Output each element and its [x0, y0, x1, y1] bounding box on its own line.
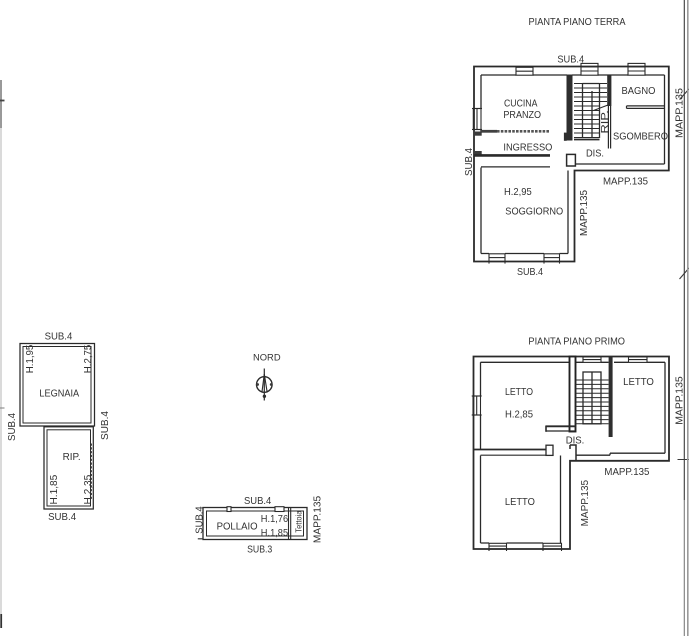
svg-text:SUB.4: SUB.4 — [244, 495, 271, 507]
svg-text:RIP.: RIP. — [599, 110, 611, 133]
svg-text:MAPP.135: MAPP.135 — [674, 376, 686, 425]
svg-text:MAPP.135: MAPP.135 — [579, 480, 591, 527]
svg-text:H.2,35: H.2,35 — [82, 475, 94, 505]
svg-text:H.2,85: H.2,85 — [505, 408, 533, 420]
svg-text:SGOMBERO: SGOMBERO — [613, 131, 668, 143]
svg-text:PIANTA PIANO PRIMO: PIANTA PIANO PRIMO — [528, 336, 625, 348]
svg-text:RIP.: RIP. — [63, 451, 81, 463]
svg-text:MAPP.135: MAPP.135 — [603, 175, 648, 187]
svg-text:DIS.: DIS. — [586, 147, 604, 159]
svg-text:PRANZO: PRANZO — [503, 109, 541, 121]
svg-text:INGRESSO: INGRESSO — [503, 143, 552, 154]
svg-text:H.1,76: H.1,76 — [261, 513, 288, 525]
svg-text:LETTO: LETTO — [623, 376, 654, 388]
svg-text:H.2,75: H.2,75 — [82, 345, 94, 374]
svg-text:H.1,95: H.1,95 — [24, 345, 36, 374]
svg-text:NORD: NORD — [253, 352, 281, 363]
svg-text:SUB.4: SUB.4 — [45, 331, 73, 343]
svg-text:MAPP.135: MAPP.135 — [312, 496, 324, 543]
svg-text:SUB.4: SUB.4 — [48, 511, 76, 523]
svg-text:SOGGIORNO: SOGGIORNO — [505, 205, 563, 217]
svg-text:SUB.4: SUB.4 — [517, 266, 543, 278]
svg-text:H.2,95: H.2,95 — [504, 186, 532, 198]
svg-text:LETTO: LETTO — [505, 386, 533, 398]
svg-text:H.1,85: H.1,85 — [261, 527, 288, 539]
svg-text:SUB.4: SUB.4 — [194, 506, 206, 534]
svg-text:POLLAIO: POLLAIO — [217, 520, 258, 532]
svg-text:SUB.4: SUB.4 — [6, 413, 18, 441]
svg-text:LEGNAIA: LEGNAIA — [39, 388, 79, 400]
svg-text:MAPP.135: MAPP.135 — [604, 466, 649, 478]
svg-text:LETTO: LETTO — [505, 496, 535, 508]
svg-text:MAPP.135: MAPP.135 — [674, 88, 686, 138]
svg-text:MAPP.135: MAPP.135 — [578, 190, 590, 236]
svg-text:DIS.: DIS. — [566, 435, 585, 447]
svg-text:PIANTA PIANO TERRA: PIANTA PIANO TERRA — [529, 16, 626, 28]
svg-text:SUB.3: SUB.3 — [247, 544, 272, 556]
svg-text:SUB.4: SUB.4 — [99, 411, 111, 440]
svg-text:SUB.4: SUB.4 — [463, 148, 475, 176]
svg-text:CUCINA: CUCINA — [504, 98, 537, 110]
svg-text:H.1,85: H.1,85 — [48, 475, 60, 505]
svg-text:BAGNO: BAGNO — [622, 85, 656, 97]
svg-text:SUB.4: SUB.4 — [557, 54, 584, 66]
svg-text:Tettoia: Tettoia — [295, 510, 304, 533]
